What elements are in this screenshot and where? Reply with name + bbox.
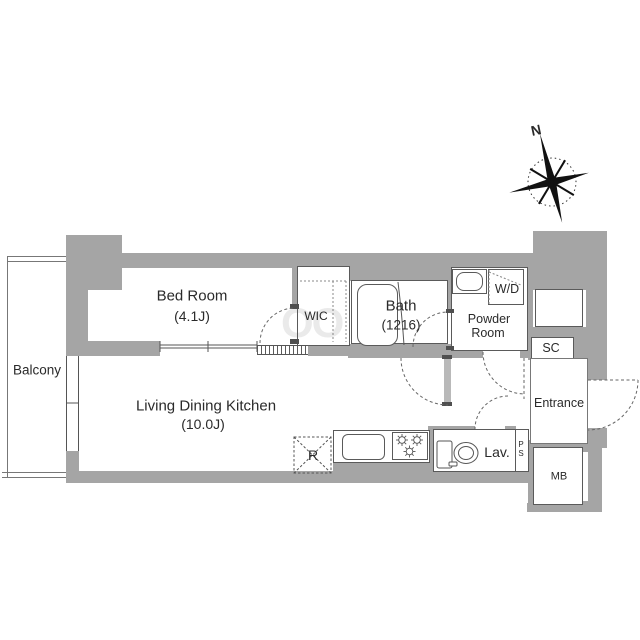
bedroom-label: Bed Room [157, 289, 228, 304]
powder-room-label-line2: Room [471, 327, 504, 340]
toilet-icon [437, 441, 478, 468]
bath-size-label: (1216) [381, 318, 420, 332]
compass-rose-icon [497, 124, 599, 233]
stove-burners-icon [396, 434, 423, 458]
ldk-label: Living Dining Kitchen [136, 399, 276, 414]
wd-label: W/D [495, 283, 519, 296]
lav-door-arc [475, 396, 508, 429]
ps-label-p: P [518, 441, 523, 449]
ps-label-s: S [518, 450, 523, 458]
floorplan: Bed Room (4.1J) Living Dining Kitchen (1… [0, 0, 640, 640]
refrigerator-label: R [308, 448, 318, 462]
wic-label: WIC [304, 310, 327, 322]
bedroom-size-label: (4.1J) [174, 309, 210, 323]
watermark: OO [281, 299, 342, 347]
sliding-door [66, 282, 404, 403]
mb-label: MB [551, 472, 568, 483]
bath-label: Bath [386, 299, 417, 314]
ldk-door-arc [401, 358, 448, 405]
powder-room-label-line1: Powder [468, 313, 510, 326]
sc-label: SC [542, 342, 559, 355]
powder-door-arc [483, 352, 525, 394]
entrance-door-arc [588, 380, 638, 430]
lav-label: Lav. [484, 445, 509, 459]
entrance-label: Entrance [534, 397, 584, 410]
balcony-label: Balcony [13, 363, 61, 377]
ldk-size-label: (10.0J) [181, 417, 225, 431]
